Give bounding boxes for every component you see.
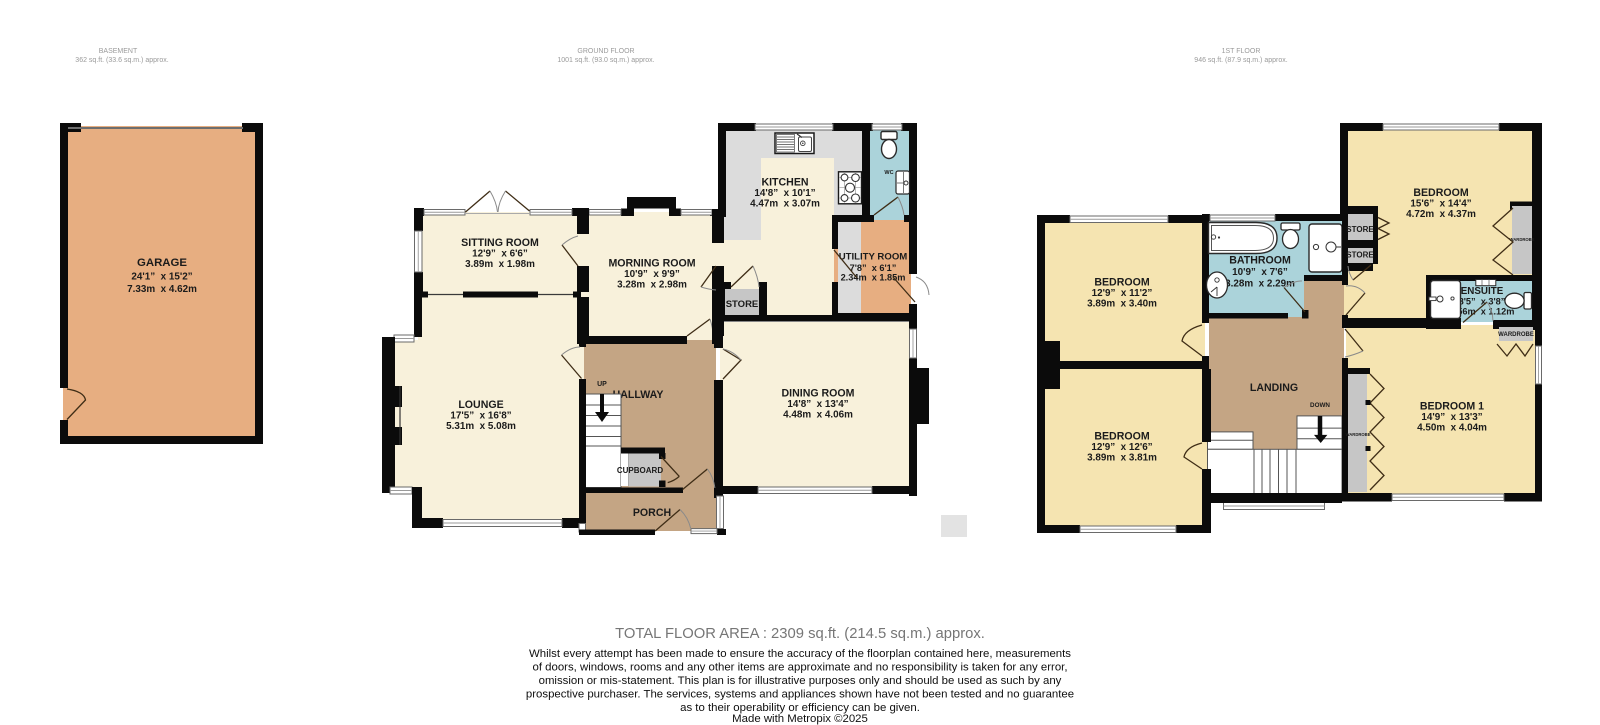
svg-text:WARDROBE: WARDROBE xyxy=(1498,332,1534,338)
svg-text:TOTAL FLOOR AREA : 2309 sq.ft.: TOTAL FLOOR AREA : 2309 sq.ft. (214.5 sq… xyxy=(615,626,985,642)
svg-text:LANDING: LANDING xyxy=(1250,382,1298,394)
svg-text:7'8” x 6'1”: 7'8” x 6'1” xyxy=(850,263,897,273)
svg-text:14'8” x 10'1”: 14'8” x 10'1” xyxy=(754,188,815,199)
svg-text:7.33m x 4.62m: 7.33m x 4.62m xyxy=(127,284,197,295)
svg-text:LOUNGE: LOUNGE xyxy=(458,399,503,411)
svg-text:14'8” x 13'4”: 14'8” x 13'4” xyxy=(787,399,848,410)
svg-text:WARDROBE: WARDROBE xyxy=(1510,237,1535,242)
svg-text:BEDROOM: BEDROOM xyxy=(1413,187,1468,199)
svg-text:PORCH: PORCH xyxy=(633,507,671,519)
svg-text:UTILITY ROOM: UTILITY ROOM xyxy=(839,252,908,263)
svg-text:WARDROBE: WARDROBE xyxy=(1346,432,1371,437)
svg-text:8'5” x 3'8”: 8'5” x 3'8” xyxy=(1459,297,1506,307)
svg-text:GROUND FLOOR: GROUND FLOOR xyxy=(577,48,634,55)
svg-text:Made with Metropix ©2025: Made with Metropix ©2025 xyxy=(732,713,868,725)
svg-text:946 sq.ft. (87.9 sq.m.) approx: 946 sq.ft. (87.9 sq.m.) approx. xyxy=(1194,57,1287,64)
svg-text:BEDROOM: BEDROOM xyxy=(1094,431,1149,443)
svg-text:4.50m x 4.04m: 4.50m x 4.04m xyxy=(1417,423,1487,434)
svg-text:WC: WC xyxy=(884,170,893,176)
svg-text:BEDROOM 1: BEDROOM 1 xyxy=(1420,401,1484,413)
svg-text:STORE: STORE xyxy=(726,299,759,310)
svg-text:4.48m x 4.06m: 4.48m x 4.06m xyxy=(783,410,853,421)
svg-text:KITCHEN: KITCHEN xyxy=(761,177,808,189)
svg-text:12'9” x 12'6”: 12'9” x 12'6” xyxy=(1091,442,1152,453)
svg-text:DINING ROOM: DINING ROOM xyxy=(782,388,855,400)
svg-text:3.89m x 3.40m: 3.89m x 3.40m xyxy=(1087,299,1157,310)
svg-text:Whilst every attempt has been: Whilst every attempt has been made to en… xyxy=(529,648,1071,660)
svg-text:UP: UP xyxy=(597,381,607,388)
svg-text:24'1” x 15'2”: 24'1” x 15'2” xyxy=(131,272,192,283)
svg-text:4.47m x 3.07m: 4.47m x 3.07m xyxy=(750,199,820,210)
svg-text:DOWN: DOWN xyxy=(1310,402,1330,409)
svg-text:CUPBOARD: CUPBOARD xyxy=(617,466,663,475)
svg-text:362 sq.ft. (33.6 sq.m.) approx: 362 sq.ft. (33.6 sq.m.) approx. xyxy=(75,57,168,64)
svg-text:MORNING ROOM: MORNING ROOM xyxy=(608,258,695,270)
svg-text:1001 sq.ft. (93.0 sq.m.) appro: 1001 sq.ft. (93.0 sq.m.) approx. xyxy=(557,57,654,64)
svg-text:BASEMENT: BASEMENT xyxy=(99,48,138,55)
svg-text:GARAGE: GARAGE xyxy=(137,257,187,269)
svg-text:10'9” x 9'9”: 10'9” x 9'9” xyxy=(624,269,680,280)
svg-text:14'9” x 13'3”: 14'9” x 13'3” xyxy=(1421,412,1482,423)
svg-text:15'6” x 14'4”: 15'6” x 14'4” xyxy=(1410,199,1471,210)
svg-text:SITTING ROOM: SITTING ROOM xyxy=(461,237,539,249)
svg-text:STORE: STORE xyxy=(1346,251,1374,260)
svg-text:12'9” x 6'6”: 12'9” x 6'6” xyxy=(472,249,528,260)
svg-text:3.89m x 1.98m: 3.89m x 1.98m xyxy=(465,259,535,270)
svg-text:1ST FLOOR: 1ST FLOOR xyxy=(1222,48,1261,55)
svg-text:17'5” x 16'8”: 17'5” x 16'8” xyxy=(450,411,511,422)
svg-text:omission or mis-statement. Thi: omission or mis-statement. This plan is … xyxy=(539,675,1062,687)
svg-text:3.89m x 3.81m: 3.89m x 3.81m xyxy=(1087,453,1157,464)
svg-text:5.31m x 5.08m: 5.31m x 5.08m xyxy=(446,421,516,432)
svg-text:of doors, windows, rooms and a: of doors, windows, rooms and any other i… xyxy=(533,662,1068,674)
svg-text:3.28m x 2.98m: 3.28m x 2.98m xyxy=(617,280,687,291)
svg-text:4.72m x 4.37m: 4.72m x 4.37m xyxy=(1406,209,1476,220)
svg-text:prospective purchaser. The ser: prospective purchaser. The services, sys… xyxy=(526,689,1074,701)
svg-text:BEDROOM: BEDROOM xyxy=(1094,277,1149,289)
svg-text:10'9” x 7'6”: 10'9” x 7'6” xyxy=(1232,267,1288,278)
svg-text:BATHROOM: BATHROOM xyxy=(1229,255,1291,267)
svg-text:ENSUITE: ENSUITE xyxy=(1461,286,1504,297)
svg-text:STORE: STORE xyxy=(1346,225,1374,234)
svg-text:12'9” x 11'2”: 12'9” x 11'2” xyxy=(1092,288,1153,299)
